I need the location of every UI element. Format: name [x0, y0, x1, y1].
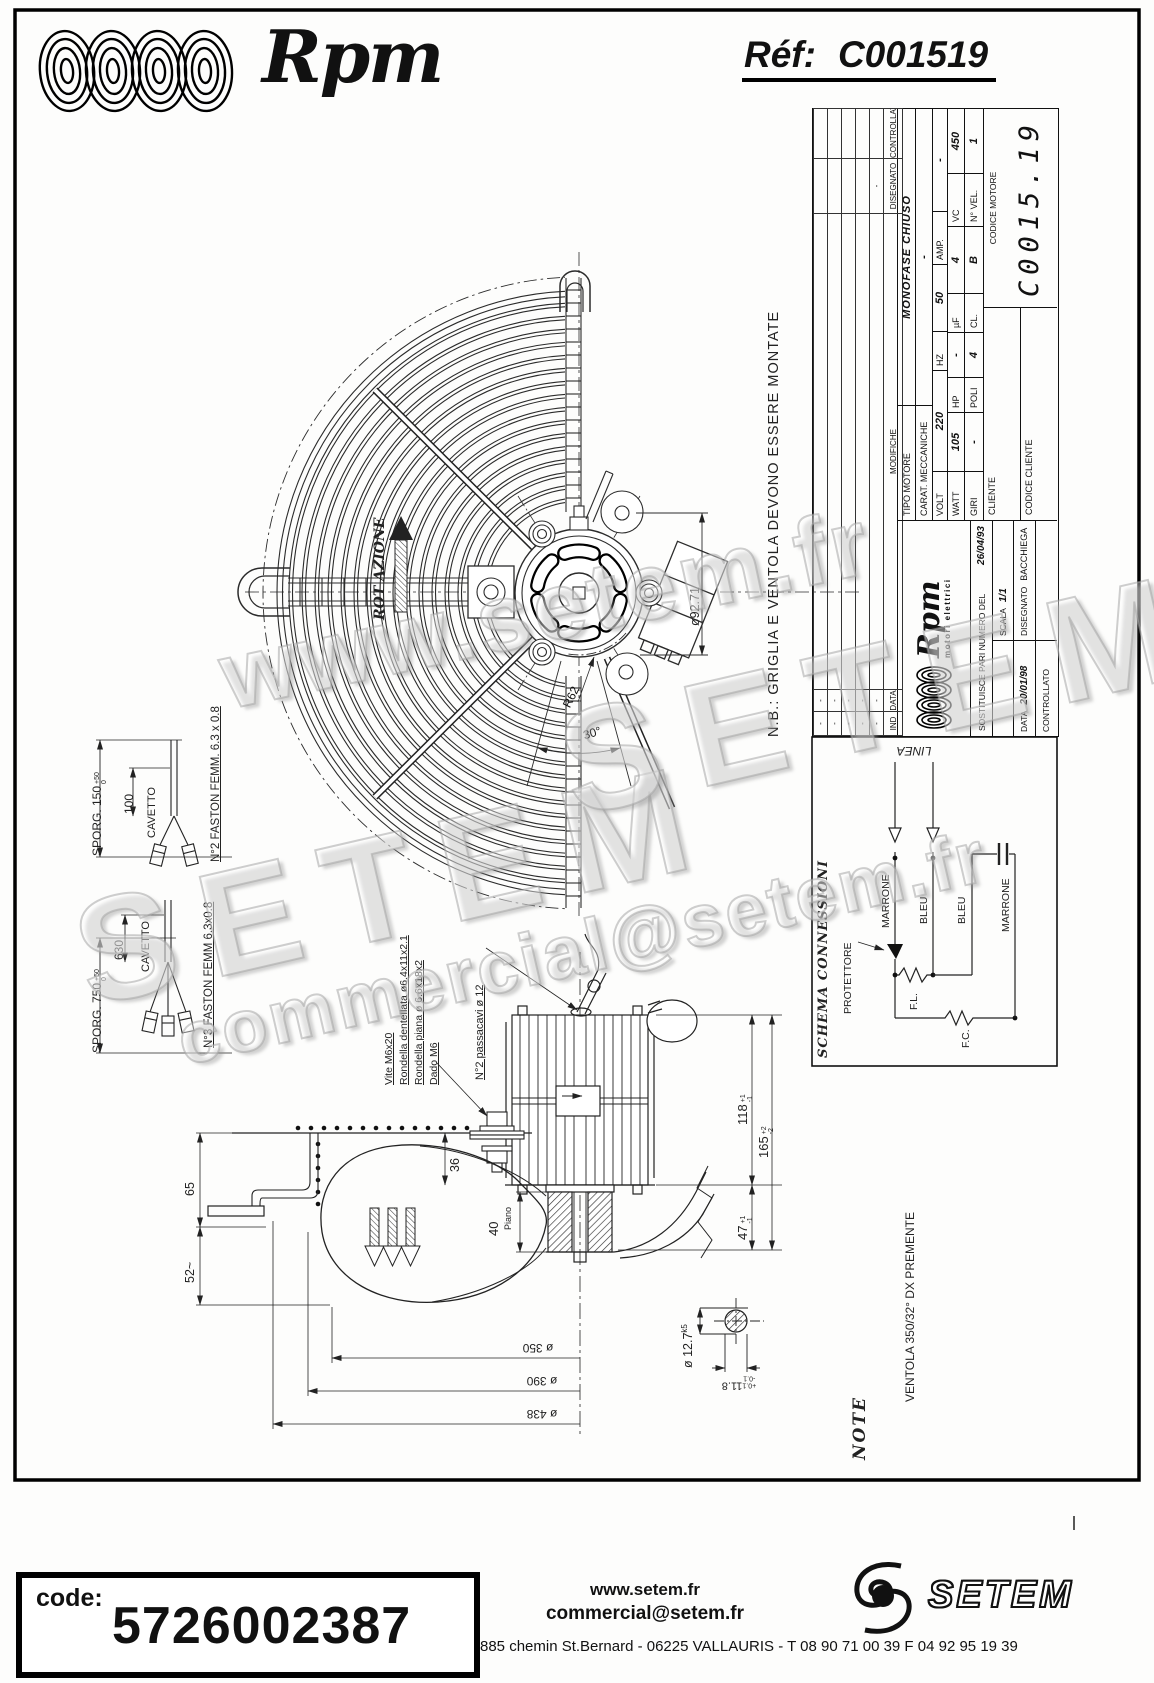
- sostituisce-row: SOSTITUISCE PARI NUMERO DEL 26/04/93: [971, 521, 993, 736]
- revision-row: --: [828, 109, 842, 736]
- dim-438: ø 438: [500, 1407, 584, 1421]
- schema-bleu-1: BLEU: [918, 897, 930, 924]
- sostituisce-value: 26/04/93: [976, 526, 987, 565]
- footer-website: www.setem.fr: [520, 1580, 770, 1600]
- part-label-vite: Vite M6x20: [383, 1033, 395, 1085]
- detail-a-length: 100: [122, 794, 136, 814]
- detail-b-tol-plus: +50: [94, 969, 101, 981]
- setem-logo-swirl: [843, 1558, 923, 1638]
- revision-row: ---: [870, 109, 884, 736]
- footer-address: 885 chemin St.Bernard - 06225 VALLAURIS …: [480, 1638, 1060, 1655]
- titleblock-logo-name: Rpm: [916, 578, 943, 658]
- dim-118-value: 118: [735, 1104, 750, 1125]
- dim-47: 47+1-1: [735, 1216, 755, 1240]
- revision-row: --: [842, 109, 856, 736]
- footer-email: commercial@setem.fr: [520, 1603, 770, 1625]
- empty-cell: [993, 640, 1014, 736]
- detail-b-sporg: SPORG. 750+500: [90, 969, 109, 1053]
- titleblock-logo-coils: [914, 666, 954, 730]
- schema-title: SCHEMA CONNESSIONI: [816, 860, 831, 1058]
- codice-motore-cell: CODICE MOTORE C0015.19: [984, 109, 1057, 307]
- schema-marrone-1: MARRONE: [880, 874, 892, 928]
- ref-value: C001519: [838, 34, 988, 76]
- reference-number: Réf: C001519: [742, 34, 996, 82]
- data-cell: DATA20/01/98: [1014, 640, 1035, 736]
- dim-350: ø 350: [496, 1341, 580, 1355]
- motor-hub: [515, 491, 662, 695]
- code-box: code: 5726002387: [16, 1572, 480, 1678]
- dim-165: 165+2-2: [756, 1126, 776, 1158]
- tipo-motore-row: TIPO MOTORE MONOFASE CHIUSO: [898, 109, 916, 520]
- cliente-cell: CLIENTE: [984, 308, 1021, 520]
- scala-cell: SCALA1/1: [993, 521, 1014, 640]
- fan-front-view: [238, 252, 895, 918]
- dim-key-value: 11.8: [722, 1380, 743, 1392]
- controllato-cell: CONTROLLATO: [1036, 640, 1057, 736]
- dim-36: 36: [448, 1158, 462, 1172]
- schema-marrone-2: MARRONE: [1000, 878, 1012, 932]
- weld-dots: [296, 1126, 470, 1207]
- detail-a-faston: N°2 FASTON FEMM. 6.3 x 0.8: [210, 706, 222, 862]
- schema-fc: F.C.: [960, 1029, 972, 1048]
- dim-52: 52~: [183, 1262, 197, 1283]
- volt-row: VOLT 220 HZ 50 AMP. -: [933, 109, 948, 520]
- titleblock-logo: Rpm motori elettrici: [898, 521, 971, 736]
- dim-key: +0.1-0.111.8: [698, 1374, 782, 1392]
- nb-note: N.B.: GRIGLIA E VENTOLA DEVONO ESSERE MO…: [766, 311, 782, 737]
- sostituisce-label: SOSTITUISCE PARI NUMERO DEL: [977, 594, 987, 731]
- detail-b-tol-minus: 0: [101, 969, 108, 981]
- carat-row: CARAT. MECCANICHE -: [916, 109, 933, 520]
- revision-row: --: [814, 109, 828, 736]
- dim-key-sup: +0.1: [742, 1381, 756, 1388]
- setem-logo-text: SETEM: [928, 1574, 1074, 1617]
- detail-a-cavetto: CAVETTO: [146, 787, 158, 838]
- schema-linea: LINEA: [891, 744, 937, 758]
- code-label: code:: [36, 1584, 103, 1613]
- part-label-rondella-dentellata: Rondella dentellata ø6.4x11x2.1: [398, 935, 410, 1085]
- dim-47-sub: -1: [747, 1216, 754, 1224]
- schema-bleu-2: BLEU: [956, 897, 968, 924]
- dim-piano: Piano: [503, 1207, 513, 1230]
- airflow-arrows: [365, 1208, 420, 1266]
- dim-shaft-tol: k5: [680, 1324, 689, 1332]
- dim-165-sub: -2: [768, 1126, 775, 1134]
- shaft-detail: [700, 1298, 764, 1372]
- note-label: NOTE: [850, 1396, 870, 1460]
- revision-table: -- -- -- -- --- INDDATA MODIFICHEDISEGNA…: [813, 109, 898, 736]
- detail-a-sporg-text: SPORG. 150: [90, 786, 104, 856]
- rotation-label: ROT AZIONE: [372, 518, 388, 620]
- schema-fl: F.L.: [908, 993, 920, 1010]
- dim-390: ø 390: [500, 1374, 584, 1388]
- empty-cell: [1036, 521, 1057, 640]
- detail-b-length: 630: [112, 940, 126, 960]
- ref-label: Réf:: [744, 34, 816, 76]
- dim-118-sup: +1: [740, 1094, 747, 1102]
- watt-row: WATT 105 HP - µF 4 VC 450: [948, 109, 965, 520]
- dim-118: 118+1-1: [735, 1094, 755, 1125]
- dim-65: 65: [183, 1182, 197, 1196]
- bolt-circle-dim-label: ø92.71: [688, 587, 702, 626]
- giri-row: GIRI - POLI 4 CL. B N° VEL. 1: [965, 109, 984, 520]
- disegnato-cell: DISEGNATOBACCHIEGA: [1014, 521, 1035, 640]
- title-block: -- -- -- -- --- INDDATA MODIFICHEDISEGNA…: [812, 108, 1059, 737]
- dim-118-sub: -1: [747, 1094, 754, 1102]
- part-label-rondella-piana: Rondella piana ø 6.6x18x2: [413, 960, 425, 1085]
- dim-165-sup: +2: [761, 1126, 768, 1134]
- codice-cliente-cell: CODICE CLIENTE: [1021, 308, 1057, 520]
- detail-b-faston: N°3 FASTON FEMM 6.3x0.8: [203, 902, 215, 1048]
- titleblock-logo-sub: motori elettrici: [943, 578, 952, 658]
- dim-key-sub: -0.1: [742, 1374, 756, 1381]
- brand-logo-text: Rpm: [262, 14, 442, 99]
- ventola-label: VENTOLA 350/32° DX PREMENTE: [903, 1212, 917, 1402]
- detail-a-sporg: SPORG. 150+500: [90, 772, 109, 856]
- dim-47-value: 47: [735, 1226, 750, 1240]
- dim-shaft: ø 12.7k5: [680, 1324, 695, 1368]
- revision-row: --: [856, 109, 870, 736]
- detail-a-tol-minus: 0: [101, 772, 108, 784]
- part-label-dado: Dado M6: [428, 1042, 440, 1085]
- dim-165-value: 165: [756, 1136, 771, 1158]
- drawing-sheet: Rpm Réf: C001519 N.B.: GRIGLIA E VENTOLA…: [0, 0, 1154, 1683]
- dim-47-sup: +1: [740, 1216, 747, 1224]
- schema-protettore: PROTETTORE: [842, 942, 854, 1014]
- passacavi-label: N°2 passacavi ø 12: [474, 985, 486, 1081]
- rpm-logo-coils: [35, 25, 250, 117]
- dim-shaft-value: ø 12.7: [681, 1333, 695, 1368]
- detail-b-cavetto: CAVETTO: [140, 921, 152, 972]
- schema-box: [812, 737, 1057, 1066]
- detail-a-tol-plus: +50: [94, 772, 101, 784]
- dim-40: 40: [486, 1222, 501, 1236]
- code-value: 5726002387: [112, 1596, 411, 1656]
- detail-b-sporg-text: SPORG. 750: [90, 983, 104, 1053]
